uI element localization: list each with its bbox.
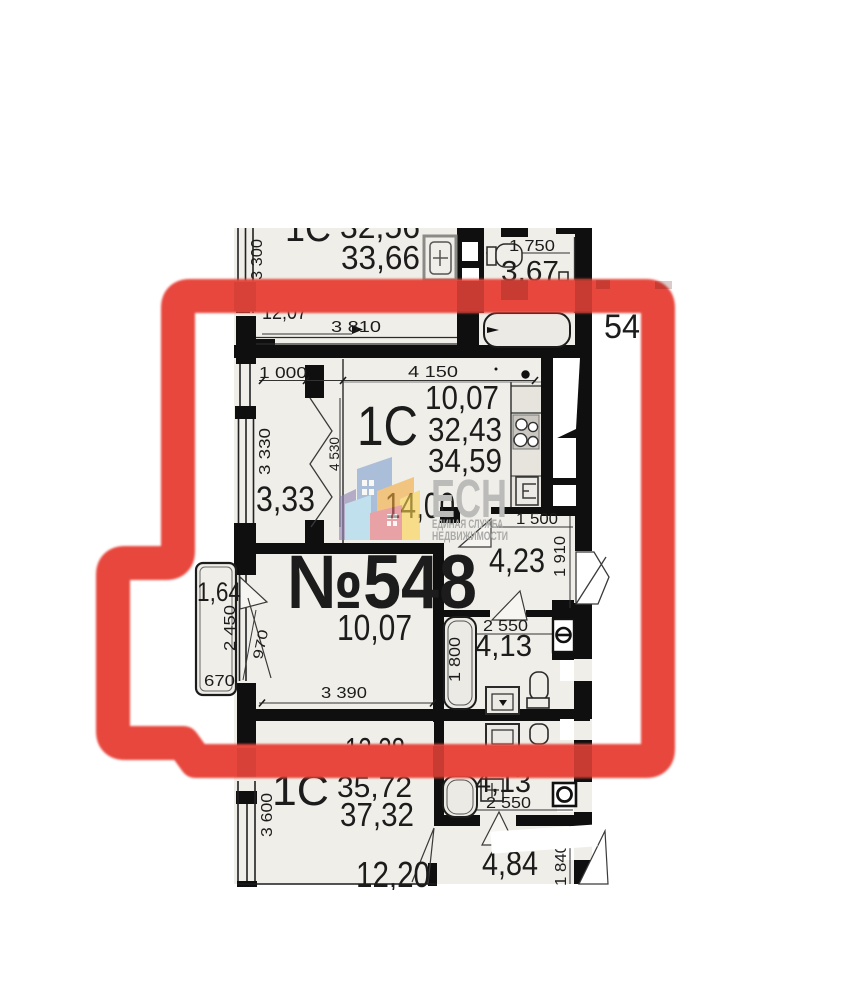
svg-text:3 810: 3 810 [331, 319, 381, 336]
svg-text:1 910: 1 910 [552, 536, 569, 577]
svg-text:1 800: 1 800 [447, 637, 464, 682]
svg-text:37,32: 37,32 [340, 796, 414, 833]
svg-text:2 550: 2 550 [483, 618, 528, 635]
svg-text:1 840: 1 840 [553, 844, 570, 886]
svg-text:1 500: 1 500 [516, 511, 558, 528]
svg-text:1,64: 1,64 [197, 577, 241, 607]
svg-text:670: 670 [204, 673, 235, 690]
svg-text:12,20: 12,20 [356, 854, 430, 895]
svg-text:2 550: 2 550 [486, 795, 531, 812]
svg-text:1С: 1С [357, 394, 418, 457]
svg-text:2 450: 2 450 [222, 605, 239, 651]
svg-text:1 000: 1 000 [259, 365, 307, 382]
svg-text:10,07: 10,07 [337, 607, 412, 648]
svg-text:4 150: 4 150 [408, 364, 458, 381]
svg-text:3 600: 3 600 [259, 793, 276, 837]
svg-text:4,23: 4,23 [489, 542, 545, 580]
svg-text:1 750: 1 750 [509, 238, 555, 255]
svg-text:3 390: 3 390 [321, 685, 367, 702]
svg-text:3,33: 3,33 [256, 480, 315, 519]
svg-text:4 530: 4 530 [326, 437, 342, 471]
svg-text:33,66: 33,66 [341, 239, 420, 276]
svg-text:54: 54 [604, 308, 640, 346]
svg-text:3 300: 3 300 [249, 239, 266, 280]
svg-text:НЕДВИЖИМОСТИ: НЕДВИЖИМОСТИ [432, 529, 508, 543]
svg-text:3 330: 3 330 [257, 428, 274, 475]
